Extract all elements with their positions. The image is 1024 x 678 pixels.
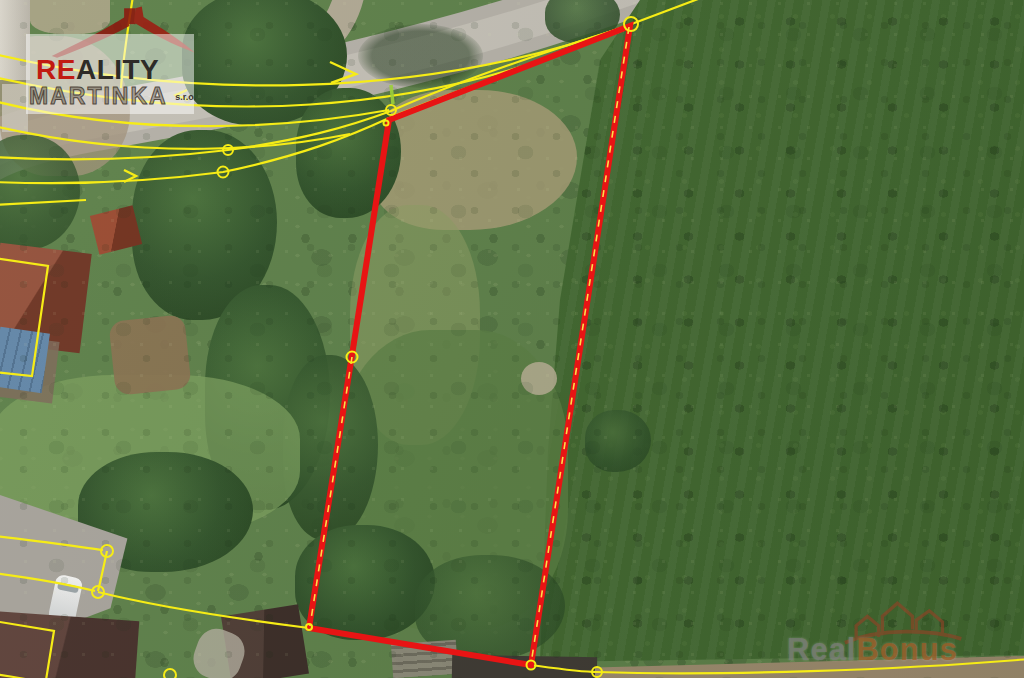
direction-arrow-icon: [330, 62, 356, 83]
survey-mark: [391, 85, 393, 104]
cadastral-line: [0, 200, 86, 205]
cadastral-line: [0, 573, 95, 591]
cadastral-line: [98, 592, 309, 628]
portal-watermark: RealBonus: [785, 598, 1023, 678]
boundary-vertex-marker: [164, 669, 176, 678]
logo-wordmark: REALITY: [36, 54, 159, 86]
cadastral-line: [0, 621, 54, 678]
logo-word-rest: ALITY: [76, 54, 159, 85]
aerial-map-view: REALITY MARTINKA s.r.o. RealBonus: [0, 0, 1024, 678]
agency-logo: REALITY MARTINKA s.r.o.: [24, 4, 202, 116]
watermark-part1: Real: [787, 632, 856, 667]
cadastral-line: [0, 258, 48, 376]
cadastral-line: [0, 536, 103, 550]
watermark-part2: Bonus: [856, 632, 957, 667]
cadastral-line: [0, 674, 30, 678]
logo-word-accent: RE: [36, 54, 76, 85]
logo-word-secondary: MARTINKA s.r.o.: [29, 83, 196, 110]
watermark-wordmark: RealBonus: [787, 632, 958, 668]
logo-word-suffix: s.r.o.: [175, 92, 196, 102]
